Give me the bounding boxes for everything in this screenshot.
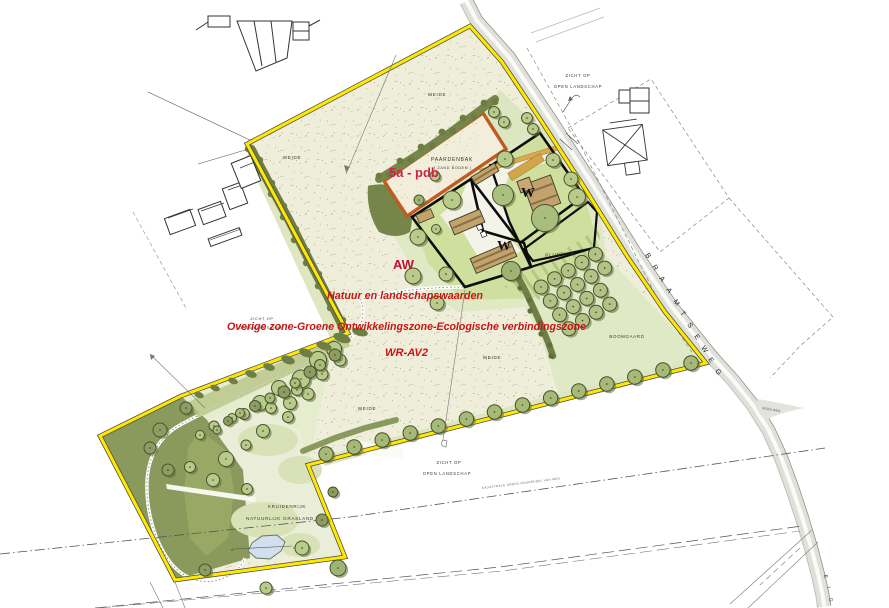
svg-text:AW: AW <box>393 257 415 272</box>
svg-text:A: A <box>231 547 234 552</box>
svg-text:WEIDE: WEIDE <box>283 155 302 160</box>
svg-text:WEIDE: WEIDE <box>358 406 377 411</box>
svg-text:ZICHT OP: ZICHT OP <box>436 460 461 465</box>
svg-text:PAARDENBAK: PAARDENBAK <box>431 157 473 163</box>
svg-text:BOOMGAARD: BOOMGAARD <box>609 334 644 339</box>
svg-text:( ZAND BODEM ): ( ZAND BODEM ) <box>434 166 472 170</box>
svg-text:ZICHT OP: ZICHT OP <box>565 73 590 78</box>
svg-text:OPEN LANDSCHAP: OPEN LANDSCHAP <box>423 471 471 476</box>
svg-text:5a - pdb: 5a - pdb <box>389 165 439 180</box>
svg-text:W: W <box>497 239 511 254</box>
svg-text:WEIDE: WEIDE <box>428 92 447 97</box>
svg-text:W: W <box>521 186 535 201</box>
svg-text:Natuur en landschapswaarden: Natuur en landschapswaarden <box>327 290 483 302</box>
svg-text:WEIDE: WEIDE <box>483 355 502 360</box>
svg-text:OPEN LANDSCHAP: OPEN LANDSCHAP <box>554 84 602 89</box>
svg-text:Overige zone-Groene Ontwikkeli: Overige zone-Groene Ontwikkelingszone-Ec… <box>227 321 586 333</box>
svg-text:KRUIDENRIJK: KRUIDENRIJK <box>268 504 307 509</box>
svg-text:WR-AV2: WR-AV2 <box>385 347 428 359</box>
svg-text:NATUURLIJK GRASLAND: NATUURLIJK GRASLAND <box>246 516 314 521</box>
